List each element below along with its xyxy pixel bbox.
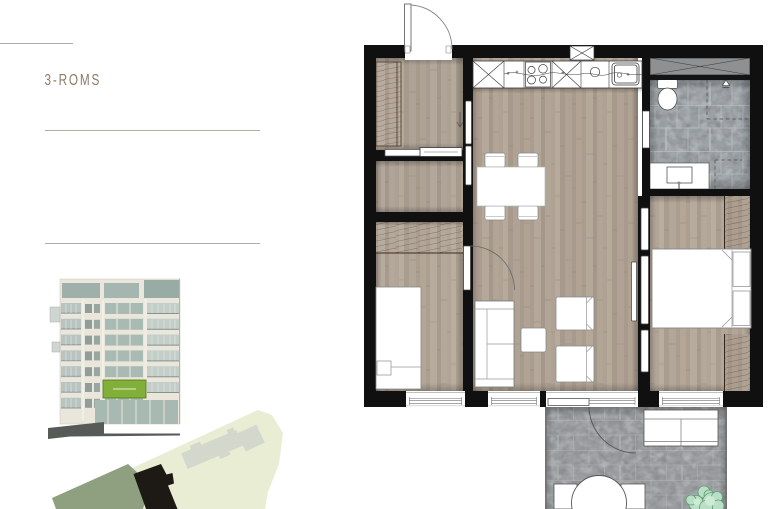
svg-text:3-ROMS: 3-ROMS	[45, 71, 102, 88]
